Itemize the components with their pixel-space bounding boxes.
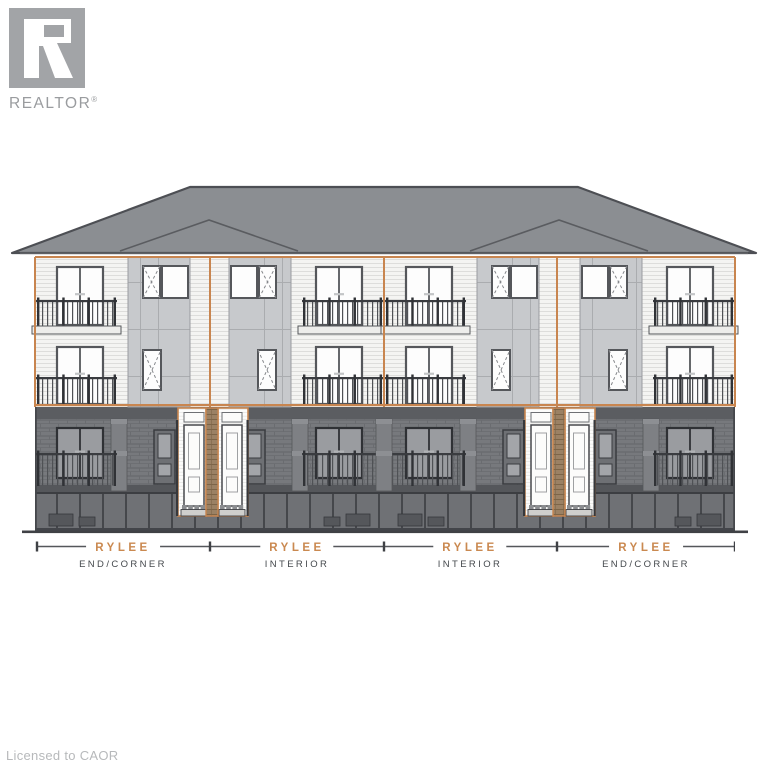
unit-label: RYLEEINTERIOR [260, 538, 333, 570]
unit-type: END/CORNER [602, 559, 690, 570]
unit-name: RYLEE [433, 540, 506, 557]
unit-type: INTERIOR [433, 559, 506, 570]
unit-name: RYLEE [609, 540, 682, 557]
dimension-labels-row: RYLEEEND/CORNERRYLEEINTERIORRYLEEINTERIO… [35, 537, 735, 577]
building-elevation [0, 0, 768, 768]
license-text: Licensed to CAOR [6, 748, 118, 763]
unit-label: RYLEEEND/CORNER [79, 538, 167, 570]
unit-name: RYLEE [260, 540, 333, 557]
page: REALTOR® [0, 0, 768, 768]
unit-name: RYLEE [86, 540, 159, 557]
ground-line [22, 531, 748, 534]
unit-label: RYLEEINTERIOR [433, 538, 506, 570]
unit-type: END/CORNER [79, 559, 167, 570]
unit-type: INTERIOR [260, 559, 333, 570]
unit-label: RYLEEEND/CORNER [602, 538, 690, 570]
hip-roof [12, 187, 756, 254]
